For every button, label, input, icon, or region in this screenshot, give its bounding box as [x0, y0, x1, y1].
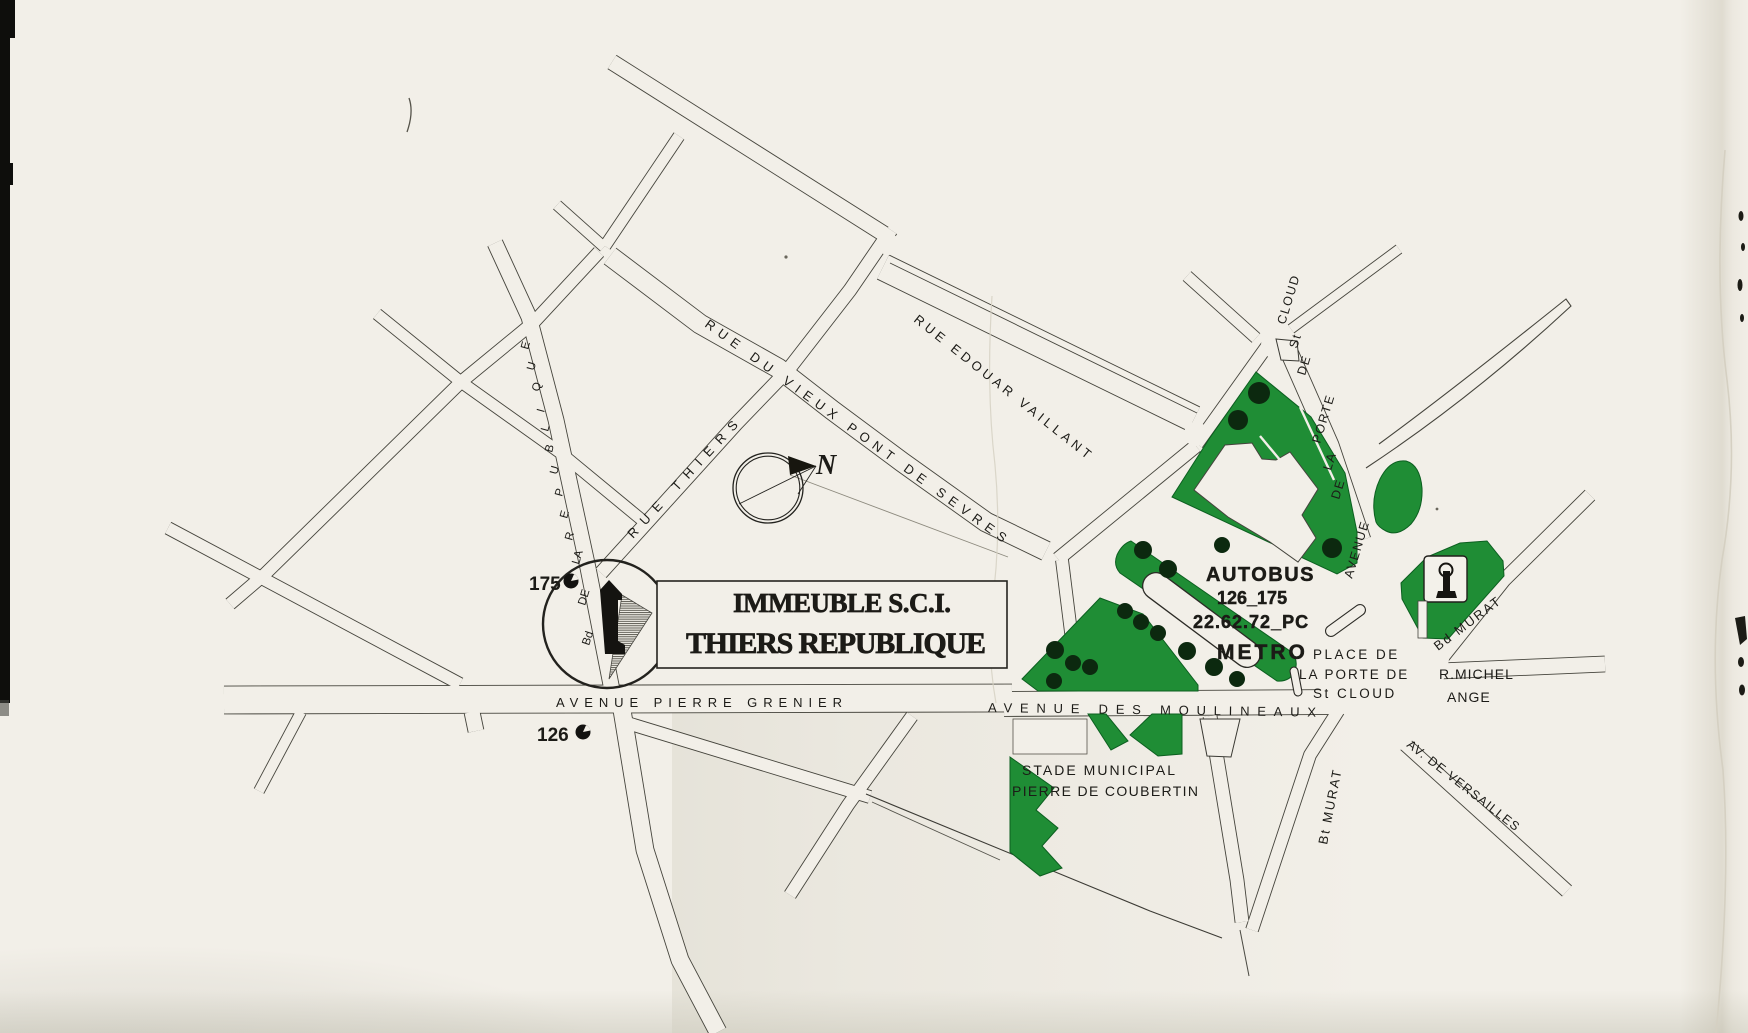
svg-text:22.62.72_PC: 22.62.72_PC — [1193, 612, 1309, 632]
svg-text:175: 175 — [529, 574, 561, 595]
svg-text:STADE MUNICIPAL: STADE MUNICIPAL — [1022, 762, 1177, 778]
svg-text:AVENUE PIERRE GRENIER: AVENUE PIERRE GRENIER — [556, 695, 846, 710]
svg-text:PLACE DE: PLACE DE — [1313, 647, 1400, 662]
svg-text:IMMEUBLE S.C.I.: IMMEUBLE S.C.I. — [733, 588, 951, 618]
svg-text:126_175: 126_175 — [1217, 588, 1287, 608]
svg-text:AUTOBUS: AUTOBUS — [1206, 564, 1315, 586]
svg-text:ANGE: ANGE — [1447, 689, 1491, 705]
svg-text:PIERRE DE COUBERTIN: PIERRE DE COUBERTIN — [1012, 783, 1200, 799]
svg-text:126: 126 — [537, 725, 569, 746]
svg-text:St CLOUD: St CLOUD — [1313, 686, 1397, 701]
svg-text:R.MICHEL: R.MICHEL — [1439, 666, 1514, 682]
svg-text:METRO: METRO — [1217, 641, 1308, 664]
svg-text:N: N — [815, 450, 838, 481]
svg-text:LA PORTE DE: LA PORTE DE — [1299, 667, 1409, 682]
svg-text:THIERS REPUBLIQUE: THIERS REPUBLIQUE — [686, 627, 986, 660]
